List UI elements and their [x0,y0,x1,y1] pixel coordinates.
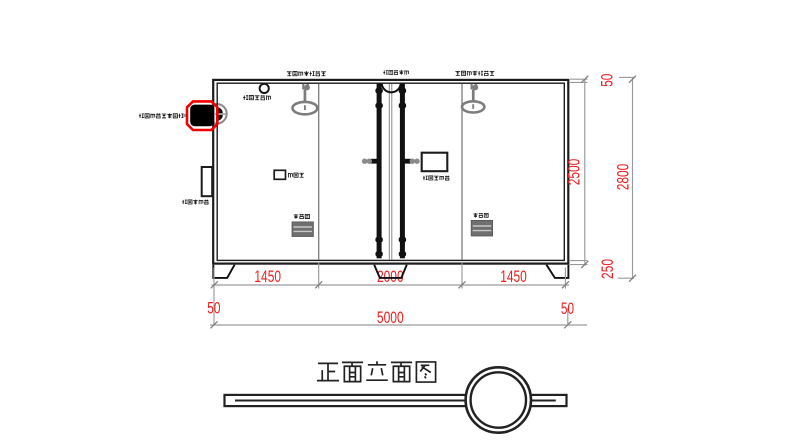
svg-text:5000: 5000 [377,308,404,327]
svg-text:50: 50 [207,298,220,317]
svg-text:2800: 2800 [614,164,633,191]
svg-text:2500: 2500 [564,159,583,186]
svg-text:50: 50 [598,74,617,87]
svg-text:1450: 1450 [500,267,527,286]
svg-text:2000: 2000 [377,267,404,286]
svg-text:250: 250 [598,259,617,279]
svg-text:1450: 1450 [254,267,281,286]
svg-text:50: 50 [561,299,574,318]
